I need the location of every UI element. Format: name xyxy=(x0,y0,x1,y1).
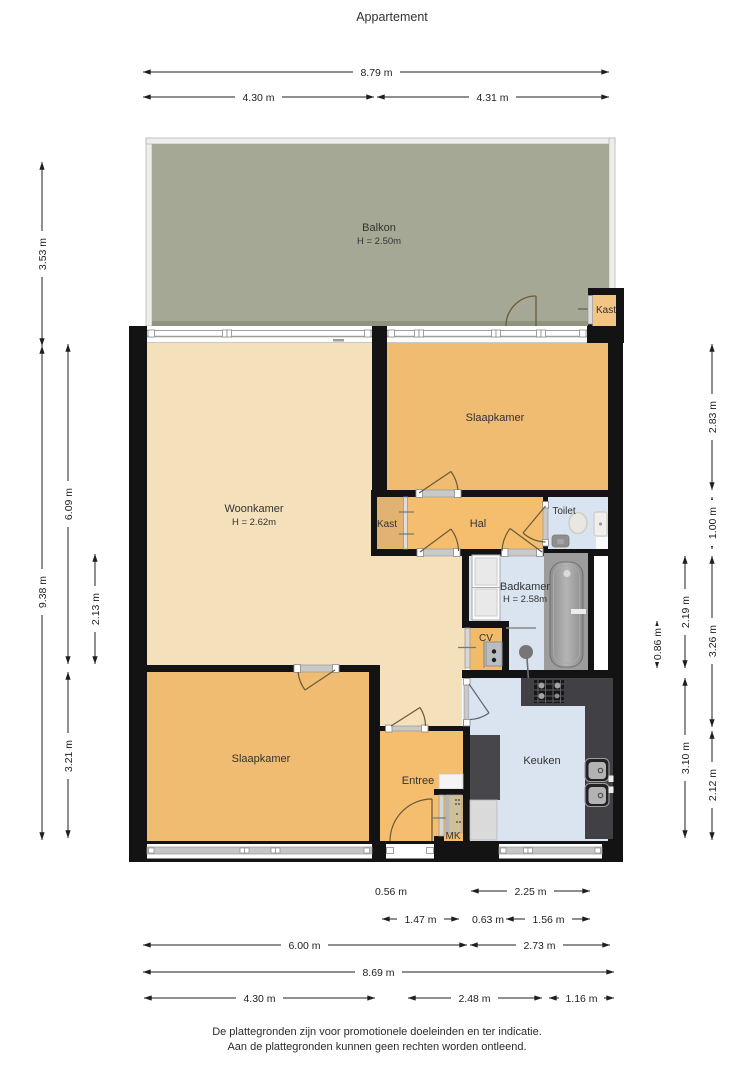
svg-text:2.83 m: 2.83 m xyxy=(707,401,719,433)
svg-text:Hal: Hal xyxy=(470,518,487,530)
svg-text:0.56 m: 0.56 m xyxy=(375,886,407,898)
svg-text:3.53 m: 3.53 m xyxy=(37,238,49,270)
svg-text:8.69 m: 8.69 m xyxy=(362,967,394,979)
svg-text:2.48 m: 2.48 m xyxy=(458,993,490,1005)
svg-text:Keuken: Keuken xyxy=(523,755,560,767)
svg-text:H = 2.58m: H = 2.58m xyxy=(503,594,547,605)
svg-text:4.30 m: 4.30 m xyxy=(243,993,275,1005)
svg-text:2.19 m: 2.19 m xyxy=(680,596,692,628)
svg-text:1.16 m: 1.16 m xyxy=(565,993,597,1005)
svg-text:0.86 m: 0.86 m xyxy=(652,628,664,660)
svg-text:3.21 m: 3.21 m xyxy=(63,740,75,772)
svg-text:0.63 m: 0.63 m xyxy=(472,914,504,926)
svg-text:4.31 m: 4.31 m xyxy=(476,92,508,104)
svg-text:Woonkamer: Woonkamer xyxy=(224,503,283,515)
svg-text:2.73 m: 2.73 m xyxy=(523,940,555,952)
svg-text:1.56 m: 1.56 m xyxy=(532,914,564,926)
svg-text:3.10 m: 3.10 m xyxy=(680,742,692,774)
svg-text:De plattegronden zijn voor pro: De plattegronden zijn voor promotionele … xyxy=(212,1026,542,1038)
svg-text:Slaapkamer: Slaapkamer xyxy=(466,412,525,424)
svg-text:6.00 m: 6.00 m xyxy=(288,940,320,952)
svg-text:H = 2.62m: H = 2.62m xyxy=(232,517,276,528)
svg-text:4.30 m: 4.30 m xyxy=(242,92,274,104)
svg-text:2.12 m: 2.12 m xyxy=(707,769,719,801)
svg-text:8.79 m: 8.79 m xyxy=(360,67,392,79)
svg-text:9.38 m: 9.38 m xyxy=(37,576,49,608)
svg-text:Balkon: Balkon xyxy=(362,222,396,234)
svg-text:Slaapkamer: Slaapkamer xyxy=(232,753,291,765)
svg-text:Appartement: Appartement xyxy=(356,10,428,24)
svg-text:H = 2.50m: H = 2.50m xyxy=(357,236,401,247)
svg-text:Kast: Kast xyxy=(596,305,616,316)
svg-text:1.00 m: 1.00 m xyxy=(707,507,719,539)
svg-text:Toilet: Toilet xyxy=(552,506,576,517)
svg-text:MK: MK xyxy=(446,831,461,842)
svg-text:3.26 m: 3.26 m xyxy=(707,625,719,657)
svg-text:2.25 m: 2.25 m xyxy=(514,886,546,898)
svg-text:6.09 m: 6.09 m xyxy=(63,488,75,520)
svg-text:2.13 m: 2.13 m xyxy=(90,593,102,625)
svg-text:Aan de plattegronden kunnen ge: Aan de plattegronden kunnen geen rechten… xyxy=(227,1041,526,1053)
svg-text:CV: CV xyxy=(479,633,493,644)
svg-text:Kast: Kast xyxy=(377,519,397,530)
svg-text:Badkamer: Badkamer xyxy=(500,581,550,593)
svg-text:Entree: Entree xyxy=(402,775,434,787)
svg-text:1.47 m: 1.47 m xyxy=(404,914,436,926)
